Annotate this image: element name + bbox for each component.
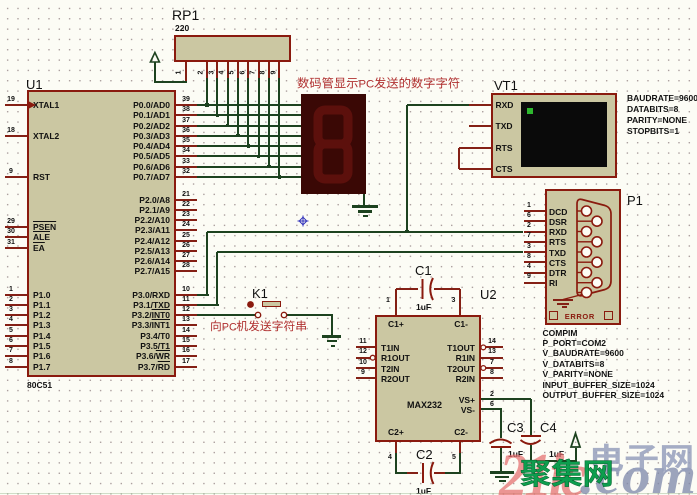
svg-text:PC: PC <box>222 321 237 333</box>
svg-text:PC: PC <box>359 79 375 91</box>
